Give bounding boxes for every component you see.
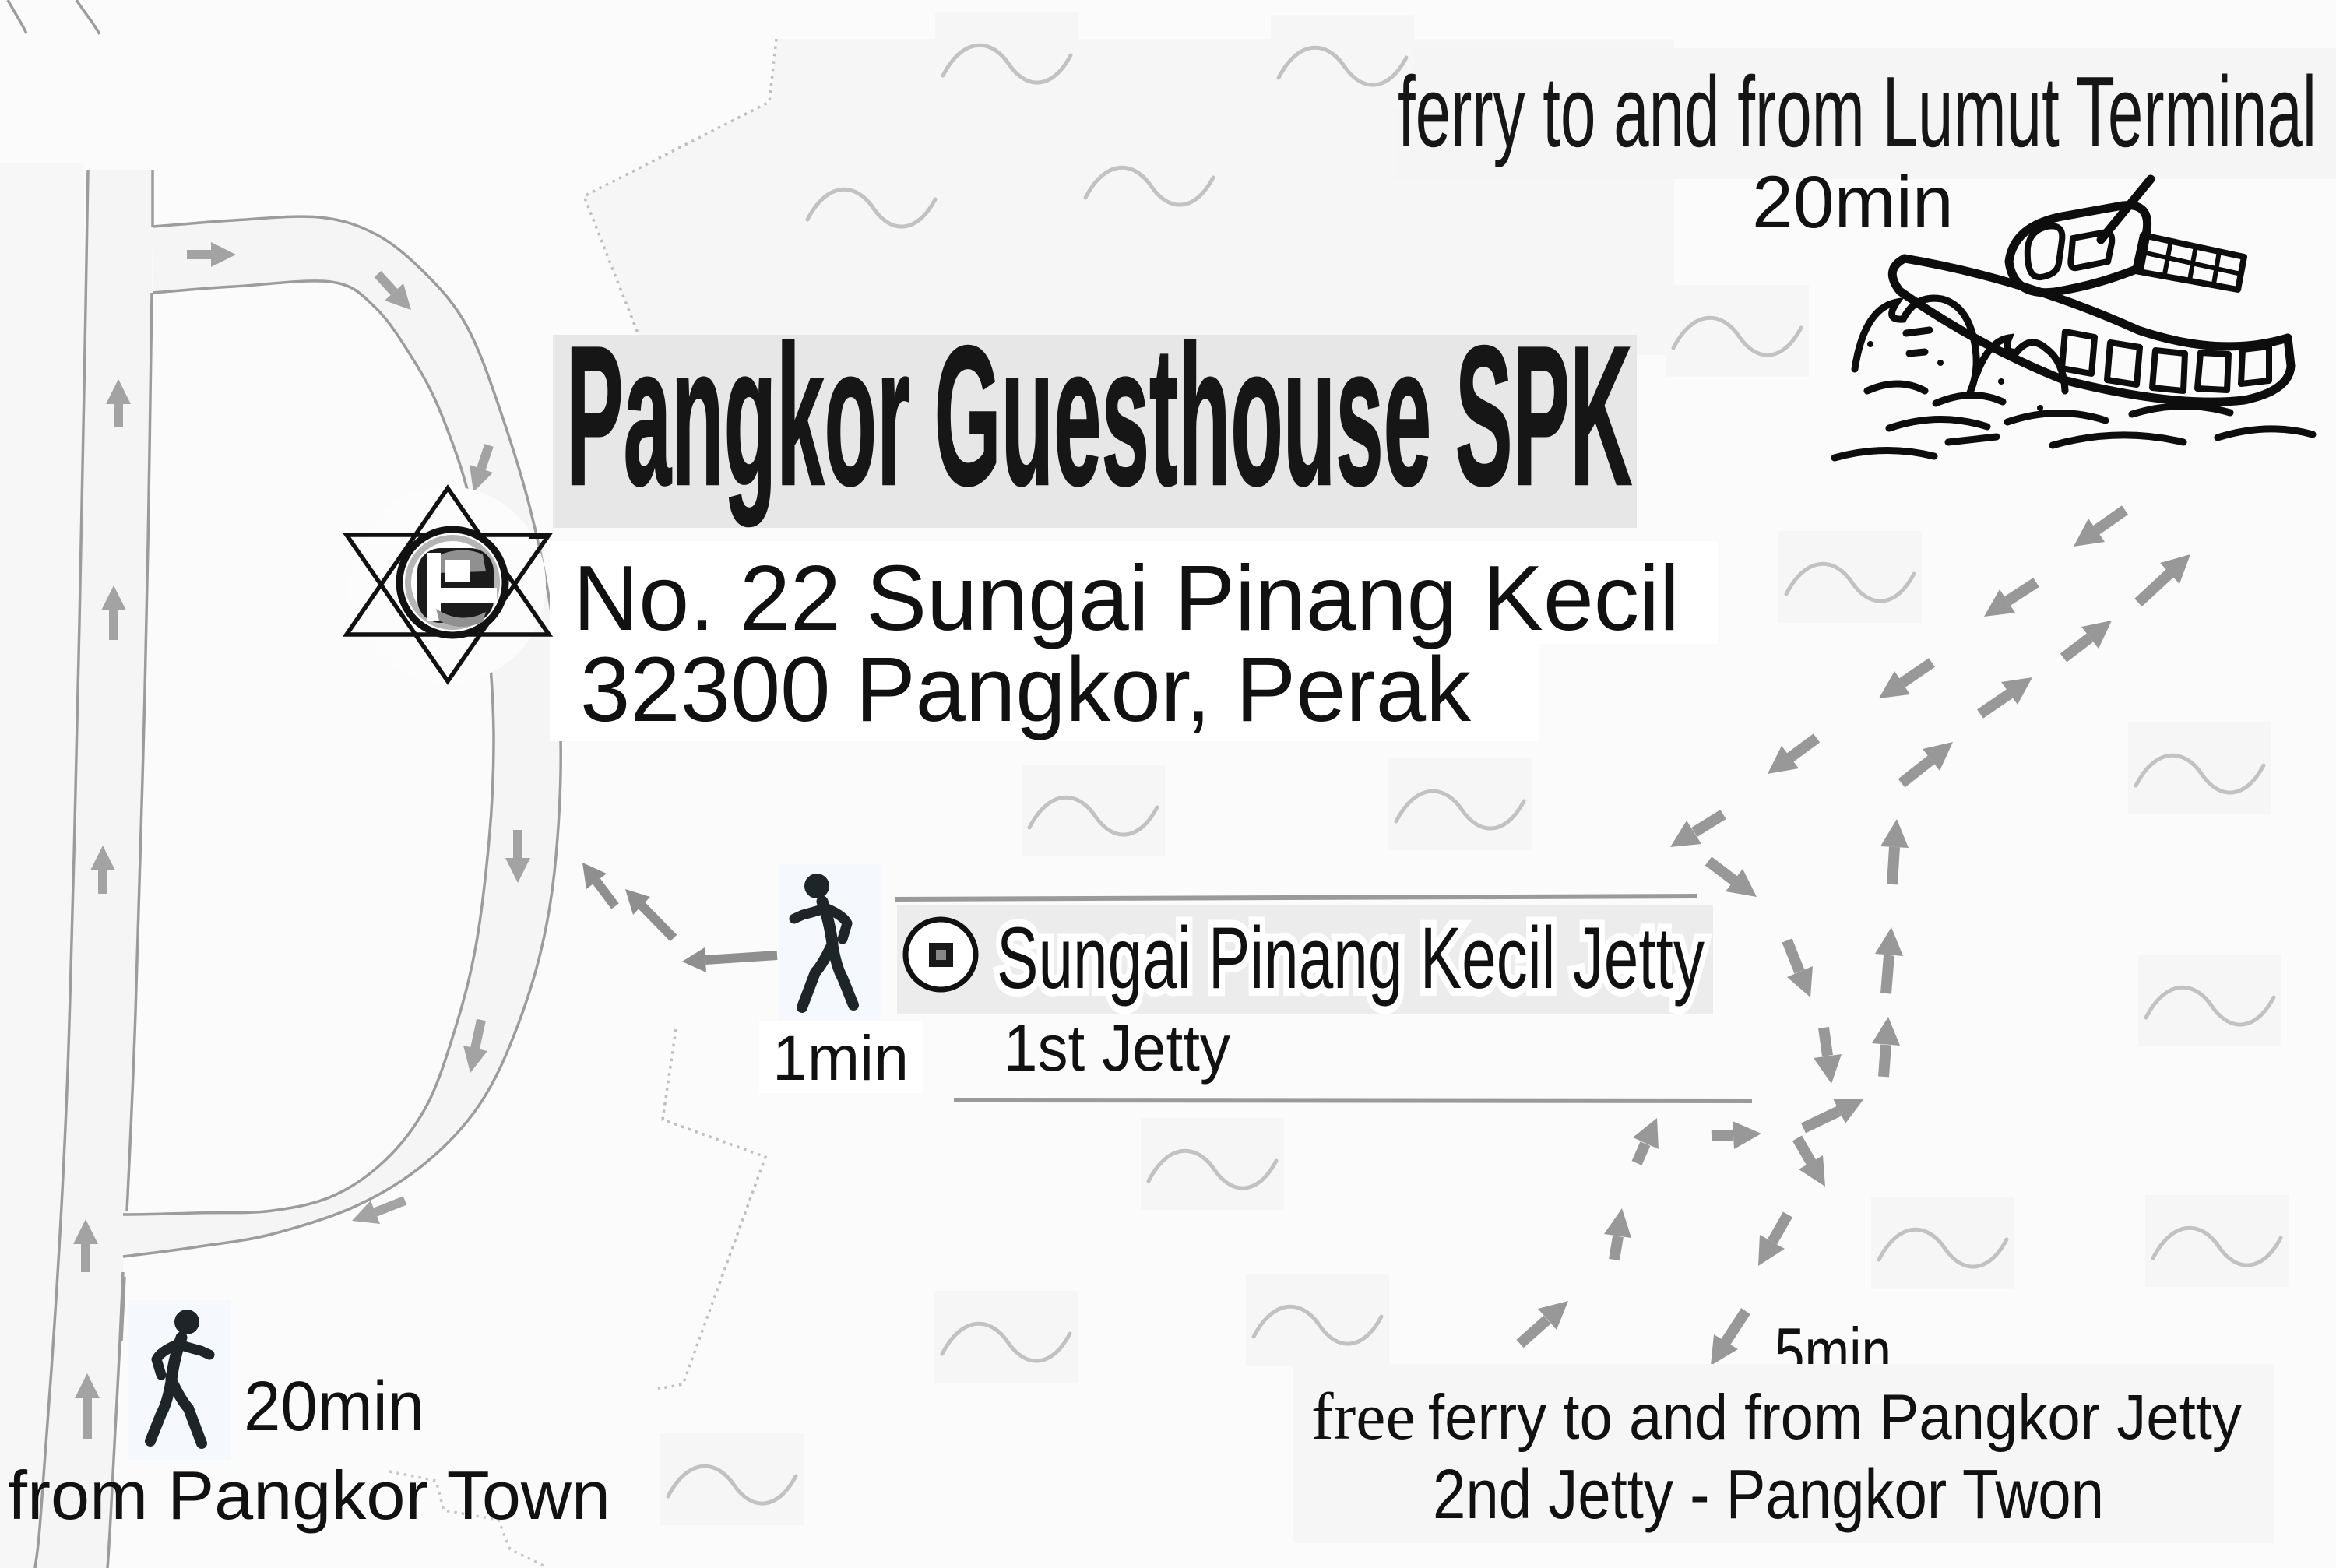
svg-text:1st Jetty: 1st Jetty	[1004, 1011, 1230, 1085]
svg-text:ferry to and from Pangkor Jett: ferry to and from Pangkor Jetty	[1428, 1382, 2242, 1453]
svg-text:32300 Pangkor, Perak: 32300 Pangkor, Perak	[580, 638, 1472, 741]
svg-text:Pangkor Guesthouse SPK: Pangkor Guesthouse SPK	[566, 305, 1632, 527]
svg-text:20min: 20min	[244, 1368, 424, 1446]
svg-text:Sungai Pinang Kecil Jetty: Sungai Pinang Kecil Jetty	[997, 909, 1705, 1007]
svg-text:free: free	[1311, 1379, 1416, 1454]
svg-text:No. 22 Sungai Pinang Kecil: No. 22 Sungai Pinang Kecil	[573, 547, 1680, 650]
svg-text:from Pangkor Town: from Pangkor Town	[8, 1457, 610, 1534]
svg-text:2nd Jetty - Pangkor Twon: 2nd Jetty - Pangkor Twon	[1433, 1456, 2104, 1534]
svg-text:20min: 20min	[1752, 161, 1954, 244]
svg-text:ferry to and from Lumut Termin: ferry to and from Lumut Terminal	[1398, 56, 2317, 168]
svg-text:1min: 1min	[772, 1023, 909, 1094]
